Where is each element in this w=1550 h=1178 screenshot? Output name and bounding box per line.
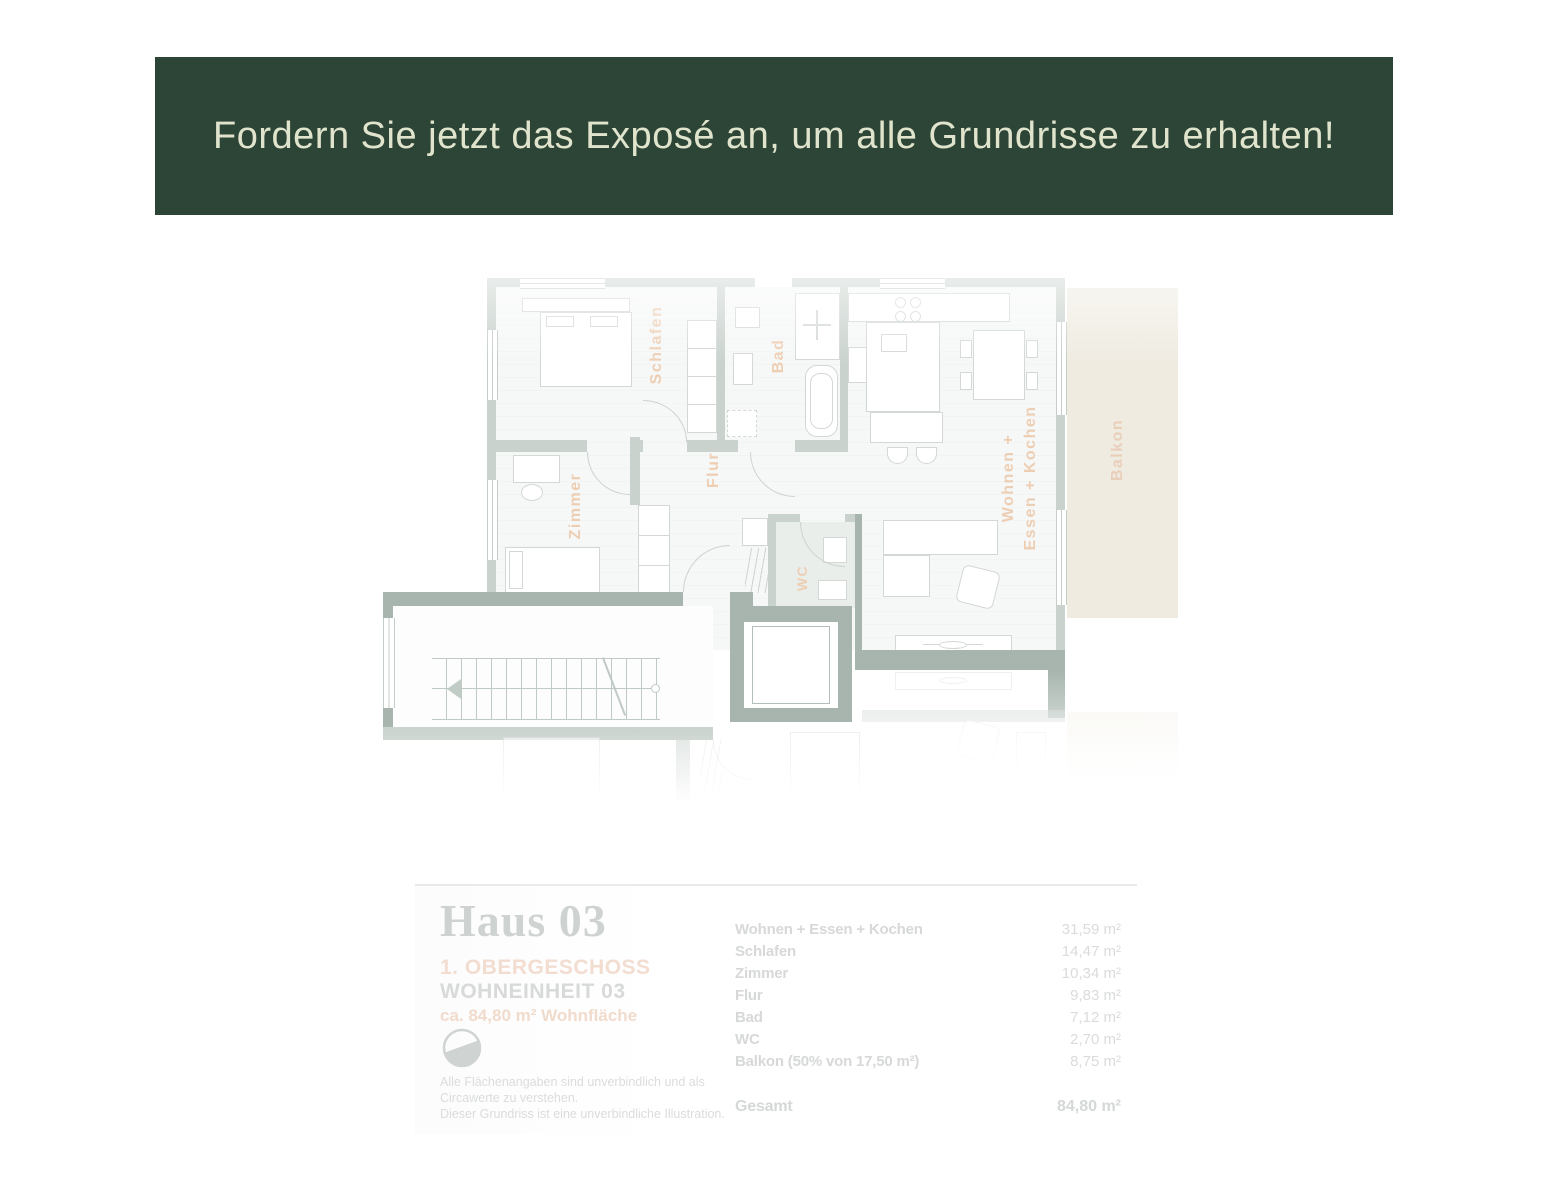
ghost-bed — [503, 737, 600, 799]
floor-plan: Schlafen Bad Zimmer Flur WC Wohnen + Ess… — [383, 270, 1183, 830]
area-row-label: Flur — [735, 987, 763, 1004]
flyer-page: Fordern Sie jetzt das Exposé an, um alle… — [0, 0, 1550, 1178]
floor-label: 1. OBERGESCHOSS — [440, 956, 651, 980]
area-row-value: 14,47 m² — [1062, 943, 1121, 960]
area-row-value: 7,12 m² — [1070, 1009, 1121, 1026]
area-row-value: 10,34 m² — [1062, 965, 1121, 982]
area-row-label: Bad — [735, 1009, 763, 1026]
area-row-value: 8,75 m² — [1070, 1053, 1121, 1070]
table-row: Schlafen 14,47 m² — [735, 940, 1121, 962]
disclaimer-line: Alle Flächenangaben sind unverbindlich u… — [440, 1074, 725, 1090]
area-row-label: WC — [735, 1031, 760, 1048]
ghost-wall — [862, 710, 1065, 722]
area-row-value: 31,59 m² — [1062, 921, 1121, 938]
north-compass-icon — [440, 1026, 484, 1070]
table-row: Bad 7,12 m² — [735, 1006, 1121, 1028]
table-row: WC 2,70 m² — [735, 1028, 1121, 1050]
room-label-wohnen-1: Wohnen + — [1000, 434, 1018, 523]
ghost-chair — [928, 775, 956, 787]
cta-banner: Fordern Sie jetzt das Exposé an, um alle… — [155, 57, 1393, 215]
room-label-zimmer: Zimmer — [567, 473, 585, 540]
area-row-label: Wohnen + Essen + Kochen — [735, 921, 923, 938]
area-row-label: Schlafen — [735, 943, 796, 960]
room-label-wohnen-2: Essen + Kochen — [1022, 405, 1040, 550]
table-row: Wohnen + Essen + Kochen 31,59 m² — [735, 918, 1121, 940]
disclaimer-line: Circawerte zu verstehen. — [440, 1090, 725, 1106]
total-label: Gesamt — [735, 1098, 793, 1116]
room-label-schlafen: Schlafen — [648, 306, 666, 385]
table-total-row: Gesamt 84,80 m² — [735, 1096, 1121, 1118]
ghost-decor — [939, 677, 967, 684]
house-title: Haus 03 — [440, 894, 607, 947]
ghost-balcony — [1067, 712, 1178, 787]
ghost-wall — [676, 730, 690, 800]
area-row-label: Balkon (50% von 17,50 m²) — [735, 1053, 919, 1070]
table-row: Zimmer 10,34 m² — [735, 962, 1121, 984]
living-area-label: ca. 84,80 m² Wohnfläche — [440, 1006, 637, 1026]
total-value: 84,80 m² — [1057, 1098, 1121, 1116]
unit-label: WOHNEINHEIT 03 — [440, 980, 626, 1004]
room-label-balkon: Balkon — [1109, 419, 1127, 481]
ghost-chair — [888, 775, 916, 787]
disclaimer-line: Dieser Grundriss ist eine unverbindliche… — [440, 1106, 725, 1122]
disclaimer: Alle Flächenangaben sind unverbindlich u… — [440, 1074, 725, 1122]
table-row: Balkon (50% von 17,50 m²) 8,75 m² — [735, 1050, 1121, 1072]
area-row-value: 2,70 m² — [1070, 1031, 1121, 1048]
legend-section: Haus 03 1. OBERGESCHOSS WOHNEINHEIT 03 c… — [415, 884, 1137, 1134]
table-row: Flur 9,83 m² — [735, 984, 1121, 1006]
room-label-flur: Flur — [705, 452, 723, 488]
ghost-wc — [790, 732, 860, 810]
area-row-value: 9,83 m² — [1070, 987, 1121, 1004]
area-row-label: Zimmer — [735, 965, 788, 982]
ghost-cabinet — [1016, 732, 1046, 777]
room-label-bad: Bad — [770, 339, 788, 374]
divider-line — [415, 884, 1137, 886]
room-label-wc: WC — [794, 565, 810, 591]
ghost-armchair — [956, 719, 1001, 764]
cta-banner-text: Fordern Sie jetzt das Exposé an, um alle… — [213, 115, 1335, 158]
